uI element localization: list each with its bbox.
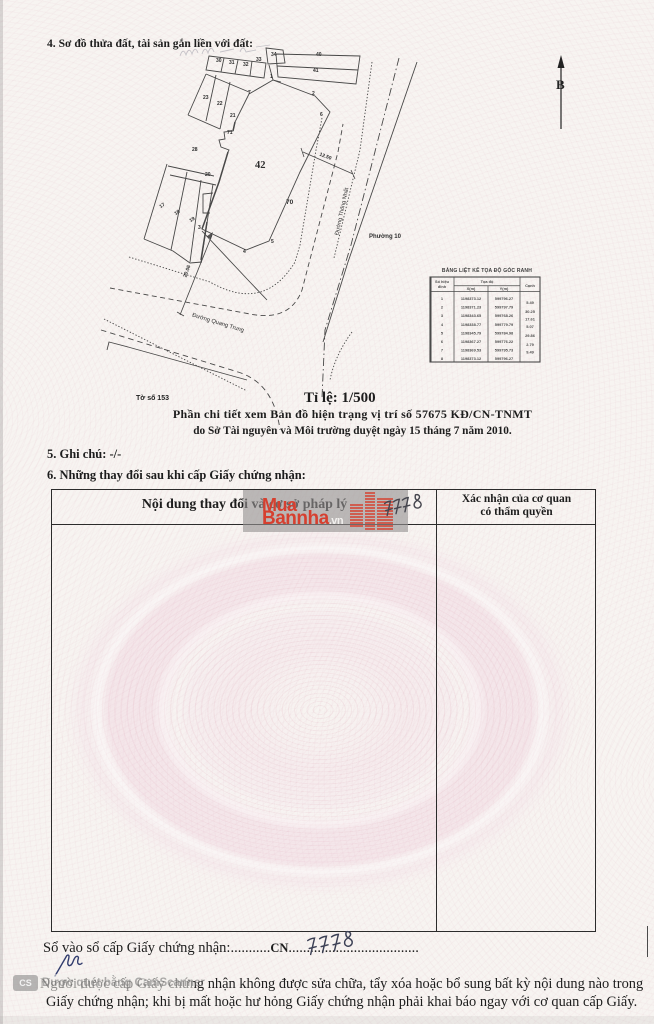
svg-text:BẢNG LIỆT KÊ TỌA ĐỘ GÓC RANH: BẢNG LIỆT KÊ TỌA ĐỘ GÓC RANH <box>442 266 532 274</box>
svg-text:Tọa độ: Tọa độ <box>481 279 494 284</box>
svg-text:41: 41 <box>313 68 319 74</box>
svg-text:2: 2 <box>441 305 444 310</box>
svg-text:20: 20 <box>205 172 211 178</box>
svg-text:5: 5 <box>441 330 444 335</box>
svg-text:3: 3 <box>198 225 201 231</box>
svg-text:3: 3 <box>441 313 444 318</box>
svg-text:42: 42 <box>255 160 266 171</box>
svg-text:1: 1 <box>270 74 273 80</box>
svg-text:1198371.23: 1198371.23 <box>461 305 482 310</box>
svg-text:1: 1 <box>441 296 444 301</box>
svg-text:30.25: 30.25 <box>525 309 536 314</box>
svg-text:30: 30 <box>216 58 222 64</box>
svg-text:599795.73: 599795.73 <box>495 348 514 353</box>
svg-text:2: 2 <box>312 91 315 97</box>
svg-text:Cạnh: Cạnh <box>525 283 535 288</box>
svg-text:5.07: 5.07 <box>526 324 534 329</box>
svg-text:17: 17 <box>158 202 166 210</box>
svg-text:1198338.77: 1198338.77 <box>461 322 481 327</box>
svg-text:7: 7 <box>441 348 443 353</box>
svg-text:17.61: 17.61 <box>525 317 536 322</box>
svg-text:599796.27: 599796.27 <box>495 296 513 301</box>
svg-text:Y(m): Y(m) <box>500 286 509 291</box>
svg-text:X(m): X(m) <box>467 286 476 291</box>
svg-text:599768.26: 599768.26 <box>495 313 514 318</box>
svg-text:599797.79: 599797.79 <box>495 305 514 310</box>
svg-text:22: 22 <box>217 101 223 107</box>
svg-text:34: 34 <box>271 52 277 58</box>
svg-text:6: 6 <box>441 339 444 344</box>
svg-text:32: 32 <box>243 62 249 68</box>
svg-text:1198373.12: 1198373.12 <box>461 296 482 301</box>
svg-text:9.49: 9.49 <box>526 350 534 355</box>
svg-text:23: 23 <box>203 95 209 101</box>
svg-text:599779.79: 599779.79 <box>495 322 514 327</box>
svg-text:599784.98: 599784.98 <box>495 330 514 335</box>
svg-text:đỉnh: đỉnh <box>438 284 447 289</box>
svg-text:8: 8 <box>441 356 444 361</box>
svg-text:28: 28 <box>192 147 198 153</box>
svg-text:2.79: 2.79 <box>526 342 534 347</box>
svg-text:5: 5 <box>271 239 274 245</box>
svg-text:71: 71 <box>227 130 233 136</box>
svg-text:Phường 10: Phường 10 <box>369 234 402 240</box>
svg-text:Đường Quang Trung: Đường Quang Trung <box>191 313 244 334</box>
svg-text:29.86: 29.86 <box>525 333 536 338</box>
svg-text:21: 21 <box>230 113 236 119</box>
svg-text:18: 18 <box>173 209 181 217</box>
svg-text:1198373.12: 1198373.12 <box>461 356 482 361</box>
svg-text:40: 40 <box>316 52 322 58</box>
svg-text:7: 7 <box>248 90 251 96</box>
svg-text:4: 4 <box>243 249 246 255</box>
svg-text:70: 70 <box>286 199 294 206</box>
svg-text:1198369.53: 1198369.53 <box>461 348 482 353</box>
svg-text:B: B <box>556 77 565 92</box>
svg-text:1198345.79: 1198345.79 <box>461 330 482 335</box>
svg-text:599776.22: 599776.22 <box>495 339 514 344</box>
svg-text:4: 4 <box>441 322 444 327</box>
svg-text:5.49: 5.49 <box>526 300 534 305</box>
svg-text:1198367.27: 1198367.27 <box>461 339 481 344</box>
svg-text:31: 31 <box>229 60 235 66</box>
svg-text:6: 6 <box>320 112 323 118</box>
svg-text:12.50: 12.50 <box>318 152 332 162</box>
svg-text:33: 33 <box>256 57 262 63</box>
svg-text:599796.27: 599796.27 <box>495 356 513 361</box>
svg-text:Đường Thống Nhất: Đường Thống Nhất <box>334 187 350 236</box>
svg-text:1198343.65: 1198343.65 <box>461 313 482 318</box>
